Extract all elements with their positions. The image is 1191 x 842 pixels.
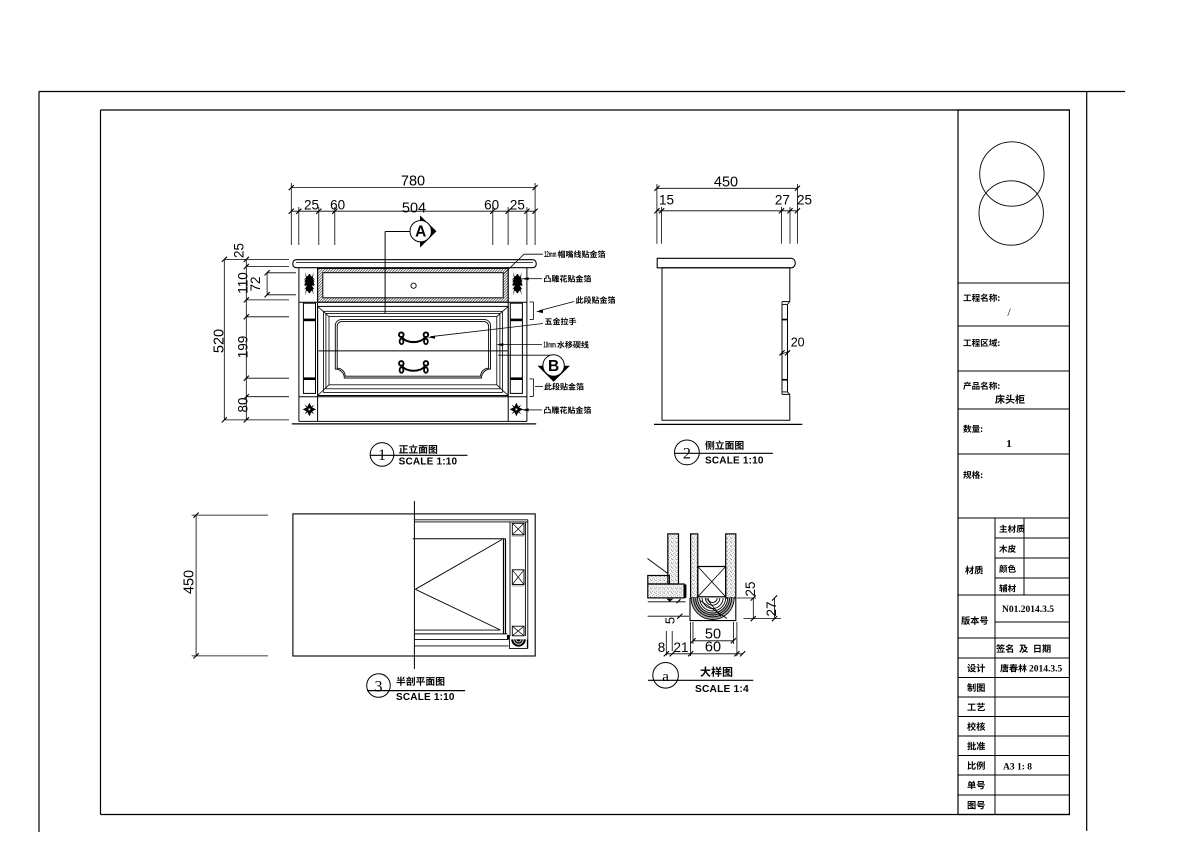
svg-text:60: 60 xyxy=(705,640,721,656)
svg-text:27: 27 xyxy=(764,601,779,616)
svg-text:SCALE 1:10: SCALE 1:10 xyxy=(705,456,764,467)
svg-text:8: 8 xyxy=(658,640,666,655)
svg-text:60: 60 xyxy=(330,198,345,213)
svg-text:2014.3.5: 2014.3.5 xyxy=(1029,665,1063,675)
svg-text:3: 3 xyxy=(375,678,383,695)
svg-text:15: 15 xyxy=(659,193,674,208)
svg-text:SCALE 1:10: SCALE 1:10 xyxy=(396,692,455,703)
svg-text:A3 1: 8: A3 1: 8 xyxy=(1003,763,1032,773)
svg-text:21: 21 xyxy=(673,640,688,655)
svg-text:12mm: 12mm xyxy=(544,249,557,259)
svg-text:25: 25 xyxy=(304,198,319,213)
svg-text:25: 25 xyxy=(743,581,758,596)
svg-text:25: 25 xyxy=(510,198,525,213)
svg-text:SCALE 1:10: SCALE 1:10 xyxy=(399,456,458,467)
svg-text:10mm: 10mm xyxy=(543,340,556,350)
svg-text:450: 450 xyxy=(182,570,198,594)
svg-text:199: 199 xyxy=(236,336,251,359)
svg-text:520: 520 xyxy=(212,329,228,353)
svg-text:N01.2014.3.5: N01.2014.3.5 xyxy=(1002,605,1054,615)
svg-text:5: 5 xyxy=(663,617,678,624)
svg-text:B: B xyxy=(548,358,559,375)
svg-text:SCALE 1:4: SCALE 1:4 xyxy=(695,684,749,695)
svg-text:20: 20 xyxy=(791,336,805,350)
svg-text:504: 504 xyxy=(402,201,426,217)
svg-text:a: a xyxy=(662,669,669,685)
svg-text:1: 1 xyxy=(1006,438,1012,450)
svg-text:A: A xyxy=(415,224,426,241)
svg-text:27: 27 xyxy=(775,193,790,208)
svg-text:60: 60 xyxy=(484,198,499,213)
svg-text:25: 25 xyxy=(232,243,247,258)
svg-text:80: 80 xyxy=(236,397,251,412)
svg-text:72: 72 xyxy=(248,276,263,291)
svg-text:/: / xyxy=(1007,305,1011,319)
svg-text:780: 780 xyxy=(401,174,425,190)
svg-text:25: 25 xyxy=(797,193,812,208)
